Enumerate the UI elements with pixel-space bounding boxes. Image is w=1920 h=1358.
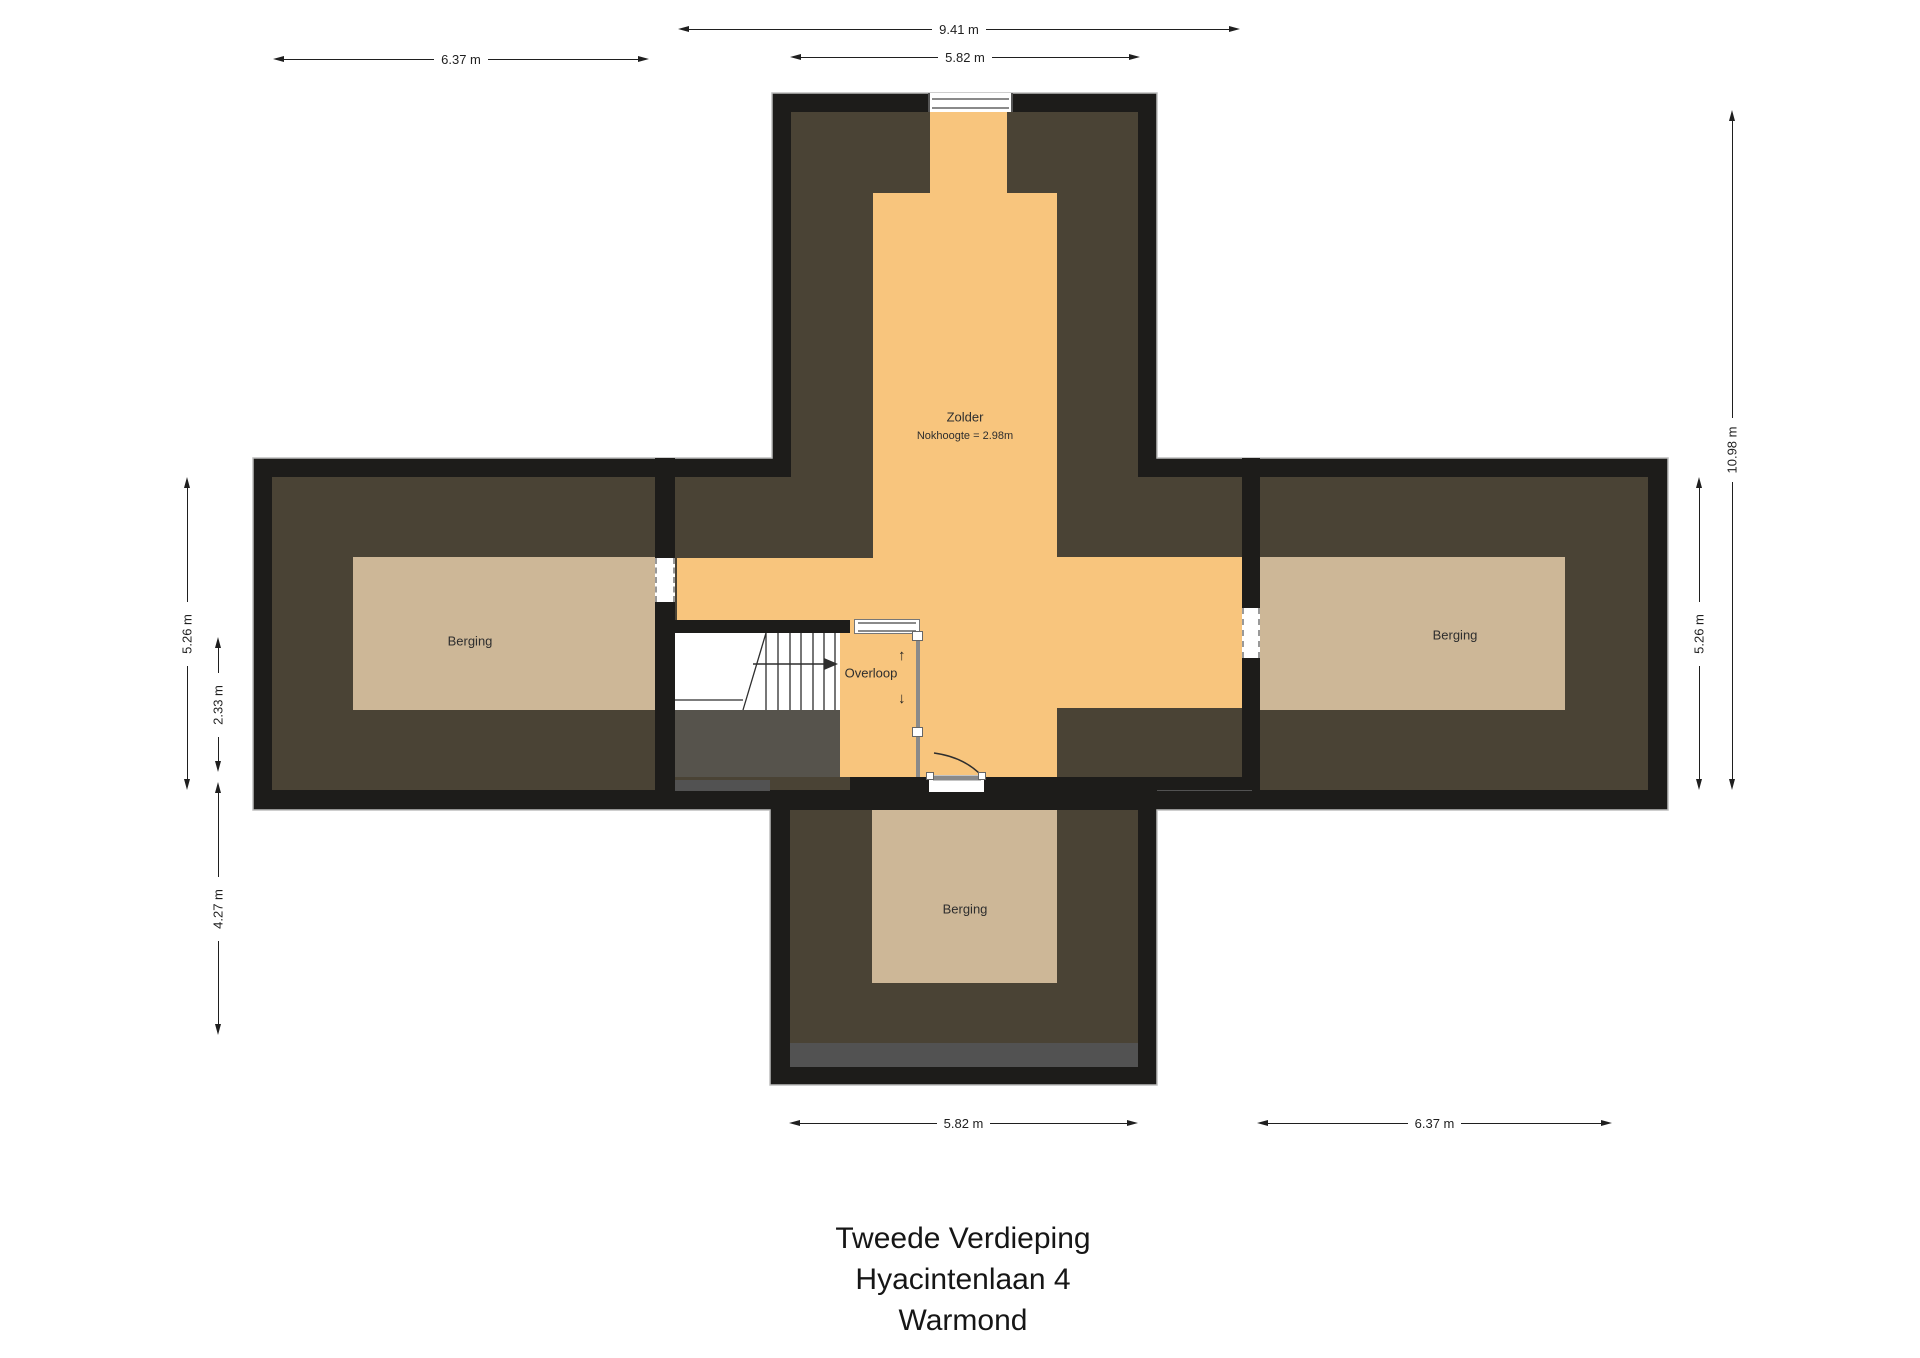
arrow-down-icon [1696, 779, 1702, 790]
dimension-label: 5.26 m [1692, 614, 1707, 654]
arrow-up-icon [215, 782, 221, 793]
arrow-down-icon [215, 761, 221, 772]
room-berging-bottom [872, 810, 1057, 983]
window-top-icon [928, 93, 1013, 112]
window-left-wall-icon [655, 558, 675, 602]
arrow-down-icon: ↓ [898, 691, 906, 706]
dimension-label: 2.33 m [211, 685, 226, 725]
dimension-left-inner: 2.33 m [211, 637, 225, 772]
dimension-label: 9.41 m [932, 22, 986, 37]
zolder-floor-left-arm [677, 558, 840, 620]
dimension-label: 6.37 m [434, 52, 488, 67]
dimension-left-height: 5.26 m [180, 477, 194, 790]
arrow-down-icon [215, 1024, 221, 1035]
title-line-floor: Tweede Verdieping [663, 1218, 1263, 1259]
door-cap-mid-icon [912, 727, 923, 737]
dimension-label: 6.37 m [1408, 1116, 1462, 1131]
dimension-right-height: 5.26 m [1692, 477, 1706, 790]
interior-wall-bottom [850, 777, 1242, 790]
arrow-left-icon [1257, 1120, 1268, 1126]
overloop-label: Overloop [845, 666, 898, 681]
railing-bars-icon [858, 622, 916, 632]
dimension-bottom-right: 6.37 m [1257, 1116, 1612, 1130]
dimension-bottom-center: 5.82 m [789, 1116, 1138, 1130]
zolder-floor-right-arm [1057, 557, 1242, 708]
arrow-left-icon [789, 1120, 800, 1126]
arrow-left-icon [273, 56, 284, 62]
window-glass-icon [932, 98, 1009, 109]
arrow-up-icon [1729, 110, 1735, 121]
arrow-up-icon: ↑ [898, 648, 906, 663]
title-line-address: Hyacintenlaan 4 [663, 1259, 1263, 1300]
dimension-right-total: 10.98 m [1725, 110, 1739, 790]
title-line-city: Warmond [663, 1300, 1263, 1341]
arrow-down-icon [1729, 779, 1735, 790]
stairwell-wall [655, 620, 850, 633]
zolder-label: Zolder [947, 410, 984, 425]
arrow-right-icon [1127, 1120, 1138, 1126]
zolder-floor-top-notch [930, 112, 1007, 193]
stairwell [675, 633, 840, 710]
room-berging-left [353, 557, 655, 710]
arrow-up-icon [184, 477, 190, 488]
arrow-right-icon [1229, 26, 1240, 32]
under-stairs-area [675, 710, 840, 777]
berging-left-label: Berging [448, 634, 493, 649]
window-right-wall-icon [1242, 608, 1260, 658]
berging-right-label: Berging [1433, 628, 1478, 643]
door-opening [929, 775, 984, 792]
arrow-left-icon [790, 54, 801, 60]
arrow-down-icon [184, 779, 190, 790]
gray-strip-bottom [790, 1043, 1138, 1067]
zolder-ridge-height-note: Nokhoogte = 2.98m [917, 430, 1013, 442]
door-hinge-right-icon [978, 772, 986, 780]
dimension-label: 5.82 m [938, 50, 992, 65]
floorplan-canvas: ↑ ↓ Zolder Nokhoogte = 2.98m Overloop Be… [0, 0, 1920, 1358]
berging-bottom-label: Berging [943, 902, 988, 917]
dimension-top-outer: 9.41 m [678, 22, 1240, 36]
arrow-left-icon [678, 26, 689, 32]
door-hinge-left-icon [926, 772, 934, 780]
arrow-right-icon [1601, 1120, 1612, 1126]
arrow-up-icon [215, 637, 221, 648]
dimension-label: 5.26 m [180, 614, 195, 654]
dimension-left-lower: 4.27 m [211, 782, 225, 1035]
dimension-top-left: 6.37 m [273, 52, 649, 66]
door-cap-top-icon [912, 631, 923, 641]
dimension-label: 4.27 m [211, 889, 226, 929]
arrow-right-icon [638, 56, 649, 62]
arrow-right-icon [1129, 54, 1140, 60]
sliding-door-line-icon [916, 633, 920, 777]
dimension-label: 5.82 m [937, 1116, 991, 1131]
dimension-top-inner: 5.82 m [790, 50, 1140, 64]
arrow-up-icon [1696, 477, 1702, 488]
dimension-label: 10.98 m [1725, 427, 1740, 474]
gray-strip-left [675, 780, 770, 791]
room-berging-right [1260, 557, 1565, 710]
stair-railing-icon [855, 620, 919, 633]
floorplan-title: Tweede Verdieping Hyacintenlaan 4 Warmon… [663, 1218, 1263, 1341]
